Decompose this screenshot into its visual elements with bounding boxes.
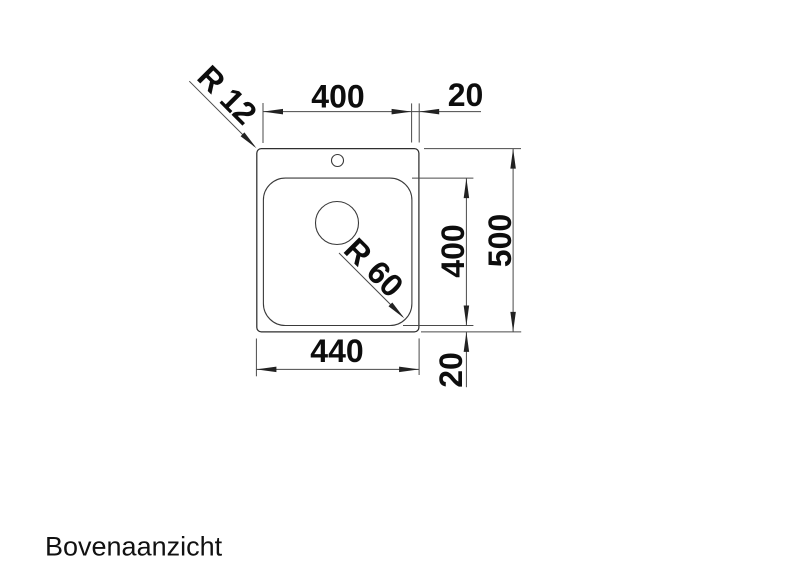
svg-text:20: 20 [448,77,484,113]
svg-text:400: 400 [435,224,471,277]
svg-text:Bovenaanzicht: Bovenaanzicht [45,532,223,562]
svg-text:440: 440 [310,333,363,369]
svg-text:500: 500 [482,214,518,267]
svg-text:20: 20 [433,352,469,388]
svg-text:400: 400 [311,79,364,115]
